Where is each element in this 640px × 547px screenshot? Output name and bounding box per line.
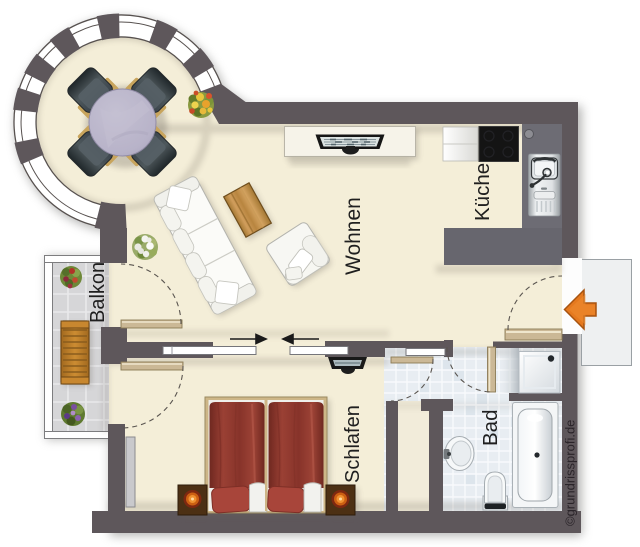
svg-text:©grundrissprofi.de: ©grundrissprofi.de: [563, 420, 578, 526]
svg-text:Schlafen: Schlafen: [342, 405, 364, 483]
svg-text:Balkon: Balkon: [87, 262, 109, 323]
svg-text:Bad: Bad: [479, 410, 502, 446]
svg-text:Küche: Küche: [471, 163, 494, 221]
svg-text:Wohnen: Wohnen: [342, 197, 365, 275]
